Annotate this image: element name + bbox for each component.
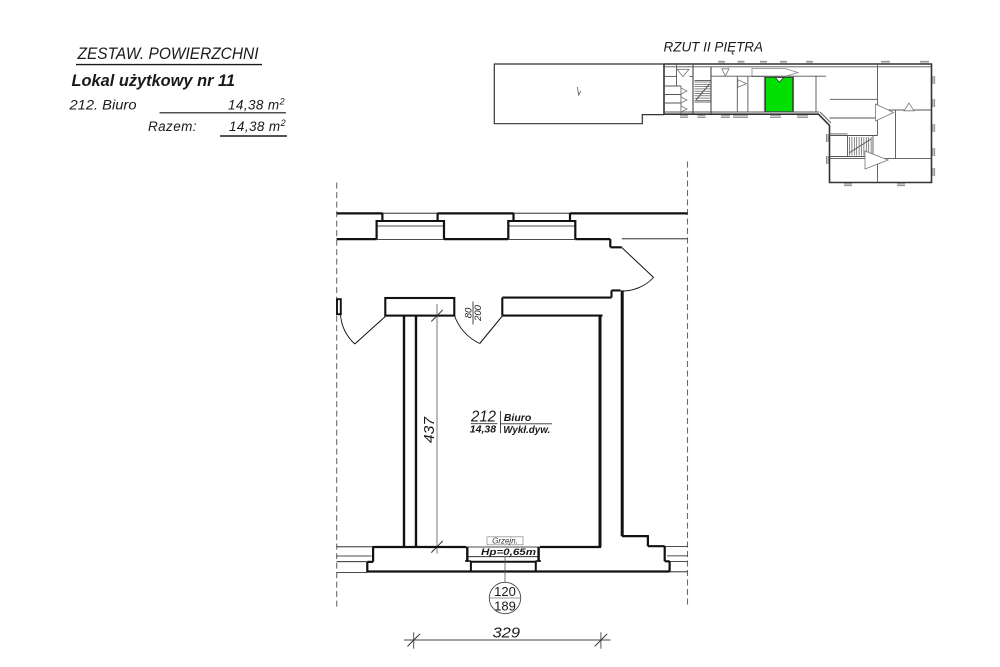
svg-text:Wykł.dyw.: Wykł.dyw. <box>503 424 550 436</box>
svg-text:RZUT II PIĘTRA: RZUT II PIĘTRA <box>664 39 764 55</box>
svg-text:Grzejn.: Grzejn. <box>492 537 518 546</box>
svg-text:Lokal użytkowy nr 11: Lokal użytkowy nr 11 <box>72 71 236 90</box>
svg-text:212. Biuro: 212. Biuro <box>68 98 137 113</box>
svg-text:ZESTAW. POWIERZCHNI: ZESTAW. POWIERZCHNI <box>77 45 259 63</box>
svg-text:120: 120 <box>494 584 516 599</box>
svg-text:14,38 m2: 14,38 m2 <box>228 97 285 113</box>
svg-text:329: 329 <box>493 626 521 642</box>
svg-text:200: 200 <box>473 304 484 322</box>
svg-text:14,38 m2: 14,38 m2 <box>229 118 286 134</box>
svg-text:14,38: 14,38 <box>470 424 496 436</box>
svg-text:189: 189 <box>494 599 516 614</box>
svg-text:Biuro: Biuro <box>504 412 532 424</box>
svg-text:Razem:: Razem: <box>148 119 197 134</box>
svg-text:437: 437 <box>422 416 438 443</box>
svg-text:Hp=0,65m: Hp=0,65m <box>481 547 537 558</box>
